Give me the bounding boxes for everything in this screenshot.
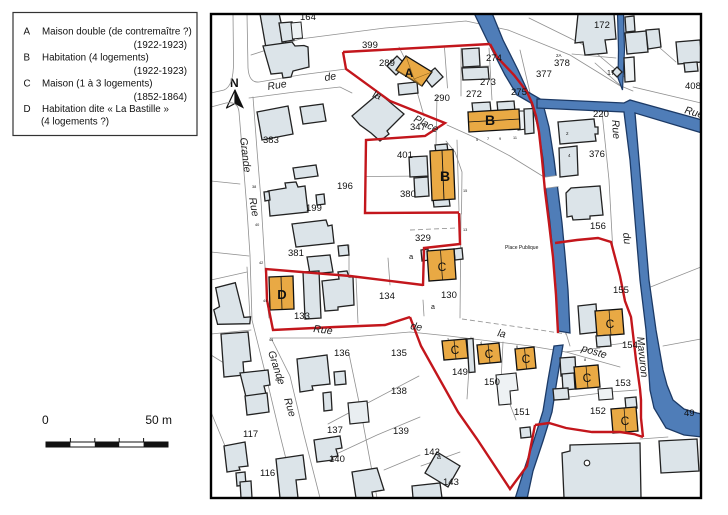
svg-text:133: 133	[294, 311, 310, 322]
svg-text:Rue: Rue	[313, 323, 334, 337]
svg-text:(4 logements ?): (4 logements ?)	[41, 117, 109, 128]
svg-text:153: 153	[615, 378, 631, 389]
svg-text:155: 155	[613, 285, 629, 296]
svg-text:136: 136	[334, 348, 350, 359]
svg-text:329: 329	[415, 233, 431, 244]
svg-text:220: 220	[593, 109, 609, 120]
svg-text:(1922-1923): (1922-1923)	[134, 40, 187, 51]
svg-text:B: B	[485, 112, 495, 128]
svg-text:Rue: Rue	[246, 196, 261, 217]
svg-text:117: 117	[243, 429, 258, 440]
svg-text:273: 273	[480, 77, 496, 88]
svg-text:Grande: Grande	[237, 137, 253, 173]
svg-text:a: a	[431, 304, 435, 311]
svg-text:Maison double (de contremaître: Maison double (de contremaître ?)	[42, 27, 192, 38]
svg-text:(1922-1923): (1922-1923)	[134, 66, 187, 77]
svg-text:Habitation (4 logements): Habitation (4 logements)	[42, 53, 149, 64]
svg-text:17: 17	[607, 70, 615, 77]
svg-text:C: C	[438, 260, 447, 274]
svg-text:143: 143	[443, 477, 459, 488]
svg-text:du: du	[620, 232, 633, 245]
svg-text:138: 138	[391, 386, 407, 397]
svg-text:B: B	[440, 168, 450, 184]
svg-text:D: D	[24, 104, 31, 115]
svg-text:272: 272	[466, 89, 482, 100]
svg-text:Place Publique: Place Publique	[505, 245, 539, 251]
svg-text:376: 376	[589, 149, 605, 160]
svg-text:290: 290	[434, 93, 450, 104]
svg-text:6: 6	[516, 345, 518, 349]
svg-text:199: 199	[306, 203, 322, 214]
svg-text:Rue: Rue	[267, 78, 288, 93]
svg-text:381: 381	[288, 248, 304, 259]
svg-text:C: C	[583, 371, 592, 385]
svg-text:42: 42	[259, 261, 263, 265]
svg-text:D: D	[277, 287, 286, 302]
svg-text:134: 134	[379, 291, 395, 302]
svg-text:44: 44	[263, 299, 267, 303]
svg-text:49: 49	[684, 408, 695, 419]
svg-text:378: 378	[554, 58, 570, 69]
svg-text:383: 383	[263, 135, 279, 146]
svg-text:C: C	[606, 317, 615, 331]
svg-text:C: C	[485, 347, 494, 361]
svg-text:152: 152	[590, 406, 606, 417]
svg-text:C: C	[621, 414, 630, 428]
svg-text:149: 149	[452, 367, 468, 378]
svg-text:40: 40	[255, 223, 259, 227]
svg-text:130: 130	[441, 290, 457, 301]
svg-text:8: 8	[584, 358, 586, 362]
svg-text:2: 2	[447, 338, 449, 342]
svg-text:7: 7	[487, 137, 489, 141]
svg-text:C: C	[24, 79, 31, 90]
svg-text:408: 408	[685, 81, 701, 92]
svg-text:156: 156	[590, 221, 606, 232]
svg-text:13: 13	[463, 228, 467, 232]
svg-text:la: la	[496, 327, 507, 341]
svg-text:139: 139	[393, 426, 409, 437]
svg-text:C: C	[522, 352, 531, 366]
svg-text:38: 38	[252, 185, 256, 189]
svg-text:Maison (1 à 3 logements): Maison (1 à 3 logements)	[42, 79, 153, 90]
svg-text:5: 5	[476, 138, 478, 142]
svg-text:172: 172	[594, 20, 610, 31]
svg-text:11: 11	[513, 136, 517, 140]
svg-text:377: 377	[536, 69, 552, 80]
svg-text:de: de	[409, 320, 423, 334]
svg-text:275: 275	[511, 87, 527, 98]
svg-text:0: 0	[42, 413, 49, 427]
svg-text:de: de	[324, 70, 338, 84]
svg-text:137: 137	[327, 425, 343, 436]
svg-text:4: 4	[480, 341, 482, 345]
svg-text:274: 274	[486, 53, 502, 64]
svg-text:196: 196	[337, 181, 353, 192]
svg-text:380: 380	[400, 189, 416, 200]
svg-text:A: A	[24, 27, 31, 38]
svg-text:A: A	[405, 66, 414, 80]
svg-text:Habitation dite « La Bastille: Habitation dite « La Bastille »	[42, 104, 169, 115]
svg-text:a: a	[437, 454, 441, 461]
svg-text:a: a	[409, 252, 414, 261]
svg-text:289: 289	[379, 58, 395, 69]
svg-text:(1852-1864): (1852-1864)	[134, 92, 187, 103]
svg-text:135: 135	[391, 348, 407, 359]
svg-text:401: 401	[397, 150, 413, 161]
svg-text:2A: 2A	[556, 53, 562, 58]
svg-text:399: 399	[362, 40, 378, 51]
svg-text:15: 15	[463, 189, 467, 193]
svg-text:140: 140	[329, 454, 345, 465]
svg-text:50 m: 50 m	[145, 413, 172, 427]
svg-text:B: B	[24, 53, 31, 64]
svg-text:9: 9	[499, 137, 501, 141]
svg-text:N: N	[230, 76, 239, 90]
svg-text:C: C	[451, 343, 460, 357]
svg-text:Rue: Rue	[609, 119, 622, 139]
svg-text:116: 116	[260, 468, 275, 479]
svg-text:46: 46	[269, 338, 273, 342]
svg-text:151: 151	[514, 407, 530, 418]
svg-text:150: 150	[484, 377, 500, 388]
